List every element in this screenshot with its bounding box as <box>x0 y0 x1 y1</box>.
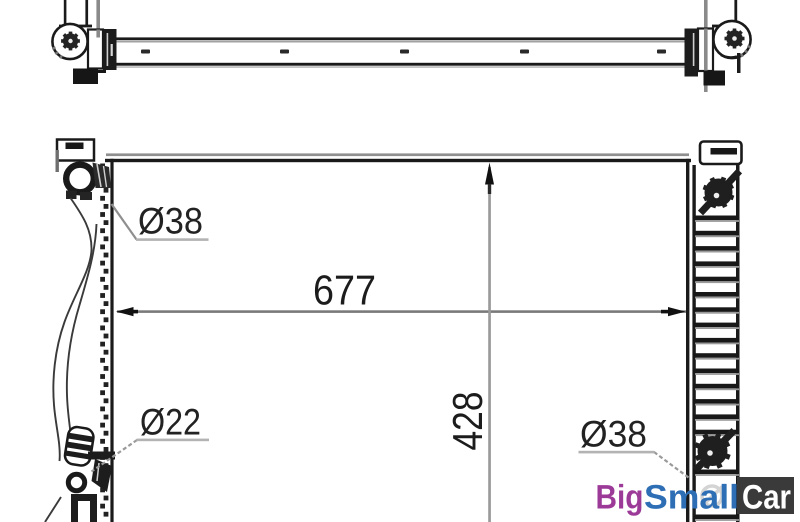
svg-text:Small: Small <box>644 479 739 517</box>
svg-text:Car: Car <box>742 479 791 517</box>
svg-text:Ø38: Ø38 <box>138 201 203 242</box>
svg-text:Ø38: Ø38 <box>580 414 647 455</box>
svg-text:677: 677 <box>313 267 376 314</box>
svg-text:Ø22: Ø22 <box>140 402 201 443</box>
svg-text:Big: Big <box>596 479 644 517</box>
svg-text:428: 428 <box>444 392 491 451</box>
